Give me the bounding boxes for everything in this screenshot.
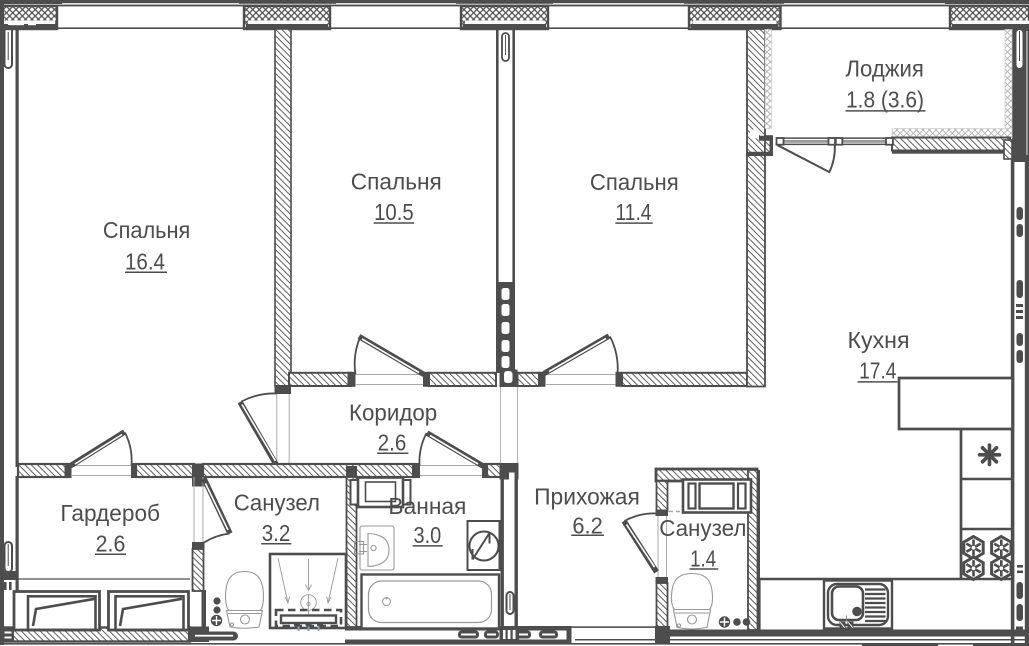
svg-text:Санузел: Санузел bbox=[234, 489, 320, 515]
svg-text:1.8 (3.6): 1.8 (3.6) bbox=[846, 86, 924, 112]
svg-text:11.4: 11.4 bbox=[616, 199, 652, 225]
svg-text:1.4: 1.4 bbox=[690, 545, 716, 571]
svg-text:10.5: 10.5 bbox=[374, 199, 414, 225]
svg-text:Прихожая: Прихожая bbox=[534, 484, 640, 510]
svg-text:Ванная: Ванная bbox=[388, 493, 466, 519]
svg-text:16.4: 16.4 bbox=[125, 249, 165, 275]
svg-text:Санузел: Санузел bbox=[659, 515, 746, 541]
svg-text:3.2: 3.2 bbox=[262, 520, 291, 546]
svg-text:2.6: 2.6 bbox=[378, 430, 407, 456]
svg-text:Спальня: Спальня bbox=[590, 169, 679, 195]
svg-text:Лоджия: Лоджия bbox=[846, 55, 924, 81]
svg-text:Кухня: Кухня bbox=[848, 327, 910, 353]
svg-text:2.6: 2.6 bbox=[96, 531, 126, 557]
svg-text:Гардероб: Гардероб bbox=[60, 500, 160, 526]
svg-text:Спальня: Спальня bbox=[103, 217, 191, 243]
svg-text:17.4: 17.4 bbox=[859, 357, 896, 383]
svg-text:3.0: 3.0 bbox=[414, 522, 442, 548]
svg-text:Коридор: Коридор bbox=[349, 399, 437, 425]
svg-text:Спальня: Спальня bbox=[351, 168, 442, 194]
